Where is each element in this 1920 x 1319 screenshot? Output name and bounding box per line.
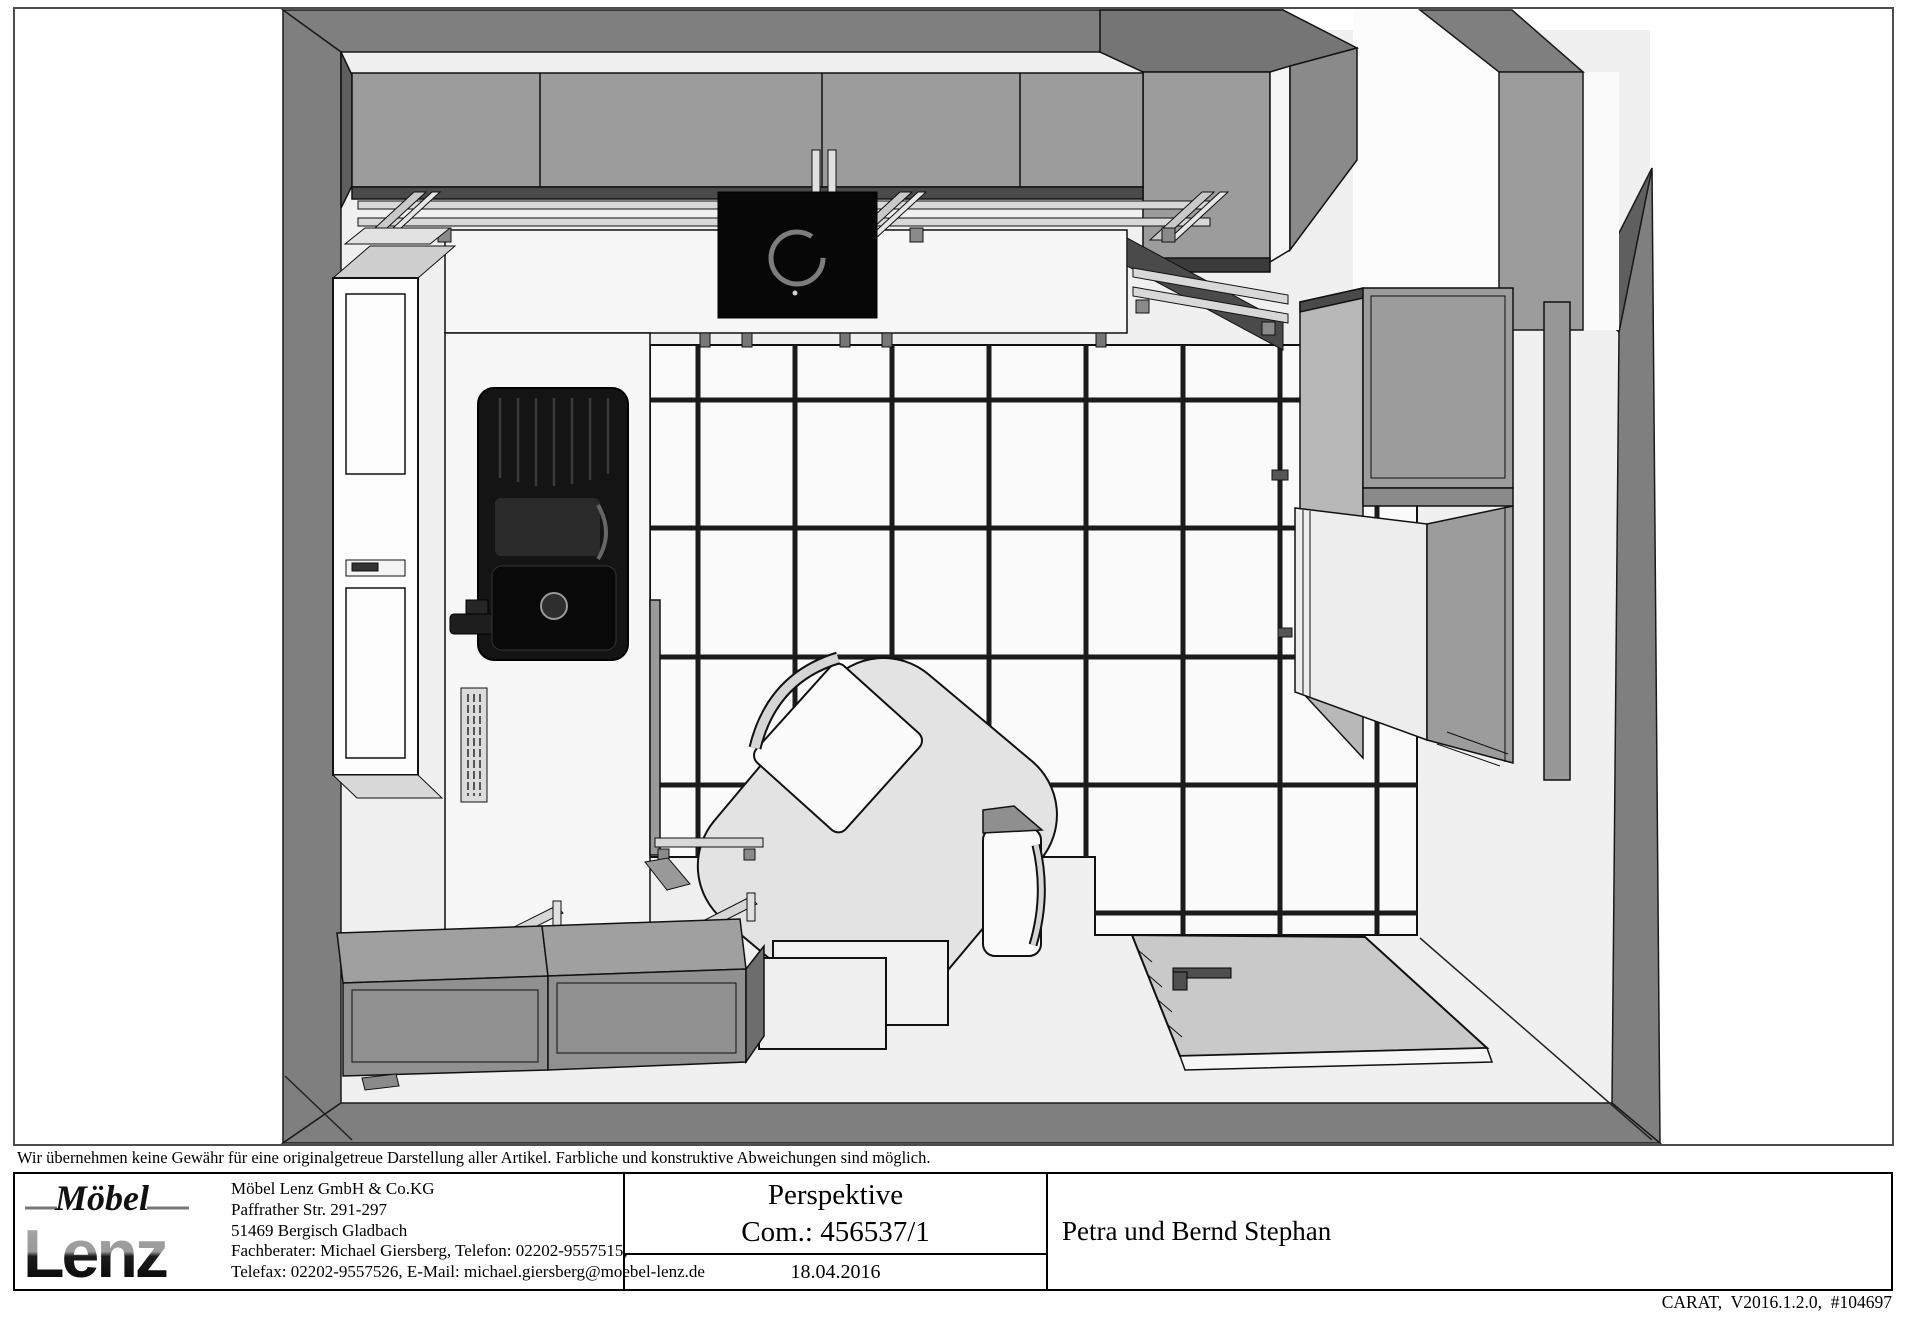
kitchen-perspective-drawing xyxy=(0,0,1920,1150)
radiator xyxy=(461,688,487,802)
software-version-note: CARAT, V2016.1.2.0, #104697 xyxy=(1662,1292,1892,1313)
bottom-wall xyxy=(283,1103,1660,1143)
title-block: Möbel Lenz Möbel Lenz GmbH & Co.KG Paffr… xyxy=(13,1172,1893,1291)
cooktop xyxy=(718,192,877,318)
customer-name: Petra und Bernd Stephan xyxy=(1048,1174,1891,1289)
disclaimer-text: Wir übernehmen keine Gewähr für eine ori… xyxy=(17,1148,930,1168)
right-cabinet-run xyxy=(1272,288,1513,766)
view-and-commission: Perspektive Com.: 456537/1 xyxy=(625,1174,1046,1253)
drain xyxy=(541,593,567,619)
title-block-company-cell: Möbel Lenz Möbel Lenz GmbH & Co.KG Paffr… xyxy=(15,1174,623,1289)
commission-number: Com.: 456537/1 xyxy=(741,1214,930,1251)
plan-date: 18.04.2016 xyxy=(625,1253,1046,1289)
window-handle xyxy=(352,563,378,571)
view-label: Perspektive xyxy=(768,1177,903,1214)
chair xyxy=(983,806,1042,956)
room-door-leaf xyxy=(1544,302,1570,780)
logo-word-moebel: Möbel xyxy=(54,1178,149,1218)
title-block-view-cell: Perspektive Com.: 456537/1 18.04.2016 xyxy=(623,1174,1048,1289)
wall-cabinets xyxy=(341,52,1143,208)
logo-word-lenz: Lenz xyxy=(23,1216,167,1288)
counter-edge xyxy=(650,600,660,855)
company-logo: Möbel Lenz xyxy=(15,1174,219,1289)
moebel-lenz-logo: Möbel Lenz xyxy=(15,1174,219,1288)
kitchen-plan-canvas xyxy=(0,0,1920,1150)
